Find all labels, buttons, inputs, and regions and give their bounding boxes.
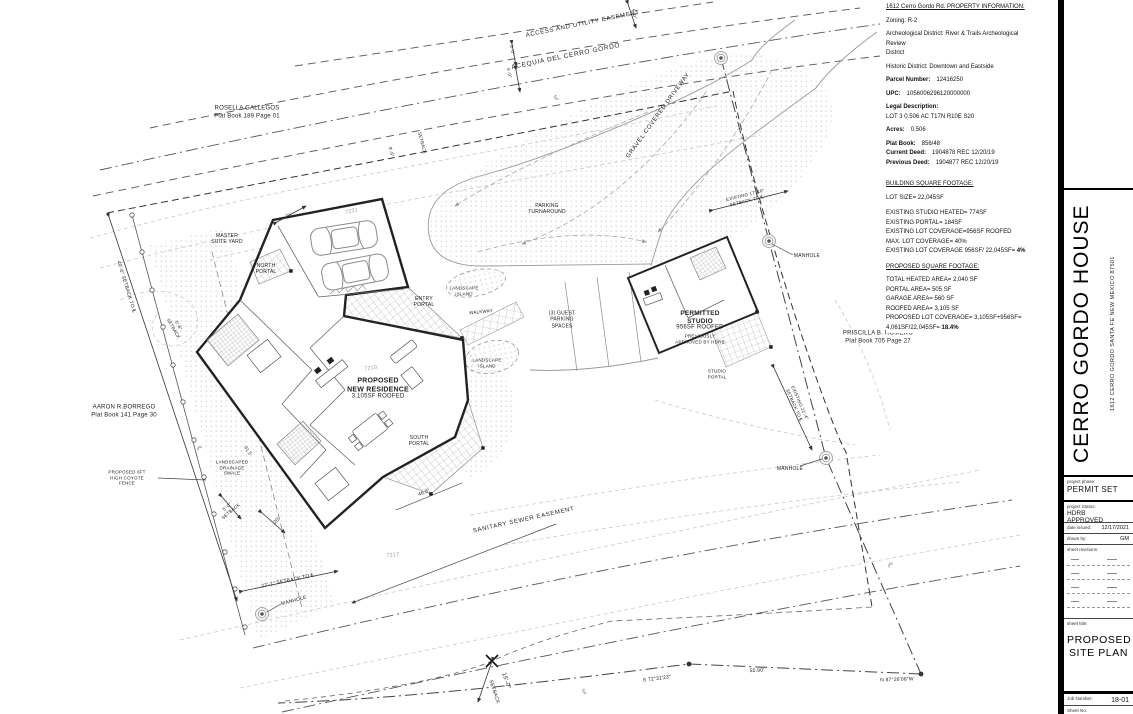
sf-line: PORTAL AREA= 505 SF [886, 286, 1034, 296]
sf-line: EXISTING PORTAL= 184SF [886, 219, 1034, 229]
parcel-number: Parcel Number:12416250 [886, 76, 1034, 86]
label-swale: LANDSCAPED DRAINAGE SWALE [216, 460, 249, 477]
site-plan-sheet: ROSELLA GALLEGOS Plat Book 189 Page 01AC… [0, 0, 1133, 714]
project-status: project Status: HDRB APPROVED [1064, 502, 1133, 523]
property-info-panel: 1612 Cerro Gordo Rd. PROPERTY INFORMATIO… [886, 3, 1034, 333]
project-address: 1612 CERRO GORDO SANTA FE NEW MEXICO 875… [1110, 200, 1120, 467]
revision-row [1067, 580, 1130, 594]
current-deed: Current Deed:1904878 REC 12/20/19 [886, 149, 1034, 159]
title-block-lower: project phase: PERMIT SET project Status… [1064, 477, 1133, 714]
label-manhole2: MANHOLE [777, 466, 803, 472]
revision-row [1067, 594, 1130, 608]
label-island2: LANDSCAPE ISLAND [472, 357, 501, 368]
label-rosella: ROSELLA GALLEGOS Plat Book 189 Page 01 [214, 106, 280, 121]
label-studio_note: PREVIOUSLY APPROVED BY HDRB [675, 333, 724, 344]
title-block-top [1064, 0, 1133, 190]
label-entry_portal: ENTRY PORTAL [414, 296, 435, 309]
building-sf-title: BUILDING SQUARE FOOTAGE: [886, 180, 1034, 190]
proposed-sf-title: PROPOSED SQUARE FOOTAGE: [886, 263, 1034, 273]
historic-district: Historic District: Downtown and Eastside [886, 63, 1034, 73]
title-block-project: CERRO GORDO HOUSE 1612 CERRO GORDO SANTA… [1064, 190, 1133, 477]
sheet-revisions: sheet revisions: [1064, 545, 1133, 619]
sf-line: MAX. LOT COVERAGE= 40% [886, 238, 1034, 248]
label-manhole1: MANHOLE [794, 253, 820, 259]
label-c7217: 7217 [386, 552, 400, 560]
upc: UPC:1056006296120000000 [886, 90, 1034, 100]
sheet-title: sheet title: PROPOSED SITE PLAN [1064, 619, 1133, 691]
label-south_portal: SOUTH PORTAL [409, 435, 430, 448]
label-studio_sf: 956SF ROOFED [676, 324, 723, 332]
revision-row [1067, 552, 1130, 566]
sf-line: TOTAL HEATED AREA= 2,040 SF [886, 276, 1034, 286]
project-phase: project phase: PERMIT SET [1064, 477, 1133, 502]
title-block: CERRO GORDO HOUSE 1612 CERRO GORDO SANTA… [1063, 0, 1133, 714]
sf-line: PROPOSED LOT COVERAGE= 3,105SF+956SF= [886, 314, 1034, 324]
label-studio_portal: STUDIO PORTAL [708, 368, 727, 379]
acres: Acres:0.506 [886, 126, 1034, 136]
label-coyote: PROPOSED 6FT HIGH COYOTE FENCE [108, 470, 145, 487]
label-d5590: 55.90' [750, 668, 765, 675]
drawn-by: drawn by: GM [1064, 534, 1133, 545]
previous-deed: Previous Deed:1904877 REC 12/20/19 [886, 159, 1034, 169]
label-residence_name: PROPOSED NEW RESIDENCE [347, 377, 409, 395]
sheet-number: Sheet No. [1064, 706, 1133, 714]
project-title: CERRO GORDO HOUSE [1070, 196, 1104, 471]
sf-line: GARAGE AREA= 560 SF [886, 295, 1034, 305]
revision-row [1067, 566, 1130, 580]
label-island1: LANDSCAPE ISLAND [449, 285, 478, 296]
label-master_yard: MASTER SUITE YARD [211, 233, 243, 246]
legal-description: Legal Description:LOT 3 0.506 AC T17N R1… [886, 103, 1034, 122]
sf-line: EXISTING LOT COVERAGE=956SF ROOFED [886, 228, 1034, 238]
label-n87: N 87°26'08"W [880, 676, 914, 683]
label-parking_turnaround: PARKING TURNAROUND [528, 203, 566, 216]
label-cl4: ℄ [582, 688, 588, 697]
sf-line: ROOFED AREA= 3,105 SF [886, 305, 1034, 315]
label-residence_sf: 3,105SF ROOFED [352, 393, 405, 401]
property-info-title: 1612 Cerro Gordo Rd. PROPERTY INFORMATIO… [886, 3, 1034, 13]
label-north_portal: NORTH PORTAL [256, 263, 277, 276]
sf-line: EXISTING LOT COVERAGE 956SF/ 22,045SF= 4… [886, 247, 1034, 257]
sf-line: 4,061SF/22,045SF= 18.4% [886, 324, 1034, 334]
lot-size: LOT SIZE= 22,045SF [886, 194, 1034, 204]
plat-book: Plat Book:856/48 [886, 140, 1034, 150]
label-aaron: AARON R.BORREGO Plat Book 141 Page 30 [91, 405, 157, 420]
zoning: Zoning: R-2 [886, 17, 1034, 27]
label-guest_parking: (3) GUEST PARKING SPACES [549, 311, 576, 330]
date-issued: date issued: 12/17/2021 [1064, 523, 1133, 534]
arch-district: Archeological District: River & Trails A… [886, 30, 1034, 59]
job-number: Job Number: 18-01 [1064, 691, 1133, 706]
sf-line: EXISTING STUDIO HEATED= 774SF [886, 209, 1034, 219]
